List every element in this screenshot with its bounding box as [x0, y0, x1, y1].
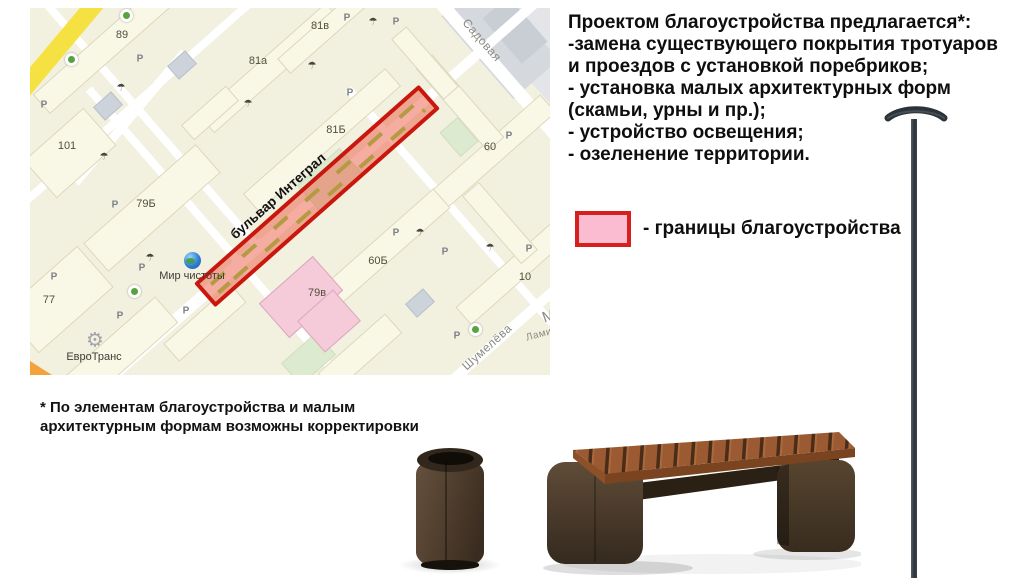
legend: - границы благоустройства [575, 211, 901, 247]
map-label: 79Б [136, 198, 155, 210]
parking-icon: Р [526, 244, 533, 255]
map-label: 101 [58, 140, 76, 152]
playground-icon: ☂ [146, 253, 155, 264]
parking-icon: Р [506, 131, 513, 142]
map-label: 79в [308, 287, 326, 299]
parking-icon: Р [51, 272, 58, 283]
proposal-line: - озеленение территории. [568, 144, 1020, 166]
playground-icon: ☂ [486, 243, 495, 254]
map-label: 77 [43, 294, 55, 306]
parking-icon: Р [442, 247, 449, 258]
parking-icon: Р [41, 100, 48, 111]
footnote-line: * По элементам благоустройства и малым [40, 398, 419, 417]
playground-icon: ☂ [244, 99, 253, 110]
bin-base [421, 560, 479, 570]
map-building [391, 26, 459, 99]
eco-marker-icon [128, 285, 141, 298]
playground-icon: ☂ [308, 61, 317, 72]
map-label: 81а [249, 55, 267, 67]
globe-icon [184, 252, 201, 269]
parking-icon: Р [347, 88, 354, 99]
lamp-post-pole [911, 119, 917, 578]
footnote-line: архитектурным формам возможны корректиро… [40, 417, 419, 436]
lamp-post-head [884, 102, 948, 124]
bin-opening [428, 452, 474, 465]
parking-icon: Р [183, 306, 190, 317]
playground-icon: ☂ [117, 83, 126, 94]
parking-icon: Р [137, 54, 144, 65]
parking-icon: Р [344, 13, 351, 24]
map-label: 81в [311, 20, 329, 32]
map-label: 89 [116, 29, 128, 41]
proposal-text-block: Проектом благоустройства предлагается*: … [568, 12, 1020, 166]
parking-icon: Р [117, 311, 124, 322]
street-name-partial: Ламин [525, 324, 550, 343]
map-label: 81Б [326, 124, 345, 136]
parking-icon: Р [454, 331, 461, 342]
proposal-line: -замена существующего покрытия тротуаров [568, 34, 1020, 56]
bench-image [543, 428, 861, 578]
gear-icon: ⚙ [86, 328, 104, 353]
bin-seam [445, 462, 447, 566]
playground-icon: ☂ [416, 228, 425, 239]
map-label: 60Б [368, 255, 387, 267]
trash-bin-image [416, 448, 484, 570]
proposal-line: и проездов с установкой поребриков; [568, 56, 1020, 78]
parking-icon: Р [139, 263, 146, 274]
eco-marker-icon [469, 323, 482, 336]
map-label: 10 [519, 271, 531, 283]
map: 89 81а 81в 81Б 101 79Б 77 60 60Б 79в 10 … [30, 8, 550, 375]
legend-label: - границы благоустройства [643, 218, 901, 240]
proposal-line: - устройство освещения; [568, 122, 1020, 144]
proposal-title: Проектом благоустройства предлагается*: [568, 12, 1020, 34]
map-corner-arrow [30, 361, 52, 375]
parking-icon: Р [393, 17, 400, 28]
eco-marker-icon [120, 9, 133, 22]
eco-marker-icon [65, 53, 78, 66]
poi-evrotrans: ЕвроТранс [66, 351, 121, 363]
map-label-partial: М [540, 306, 550, 326]
street-name-shumeleva: Шумелёва [459, 321, 514, 373]
map-label: 60 [484, 141, 496, 153]
playground-icon: ☂ [369, 17, 378, 28]
bin-body [416, 456, 484, 570]
parking-icon: Р [393, 228, 400, 239]
poi-mir-chistoty: Мир чистоты [159, 270, 225, 282]
legend-boundary-swatch [575, 211, 631, 247]
slide: { "proposal": { "lines": [ "Проектом бла… [0, 0, 1024, 578]
footnote: * По элементам благоустройства и малым а… [40, 398, 419, 436]
parking-icon: Р [112, 200, 119, 211]
map-parking-lot [405, 288, 435, 317]
playground-icon: ☂ [100, 152, 109, 163]
proposal-line: - установка малых архитектурных форм [568, 78, 1020, 100]
proposal-line: (скамьи, урны и пр.); [568, 100, 1020, 122]
